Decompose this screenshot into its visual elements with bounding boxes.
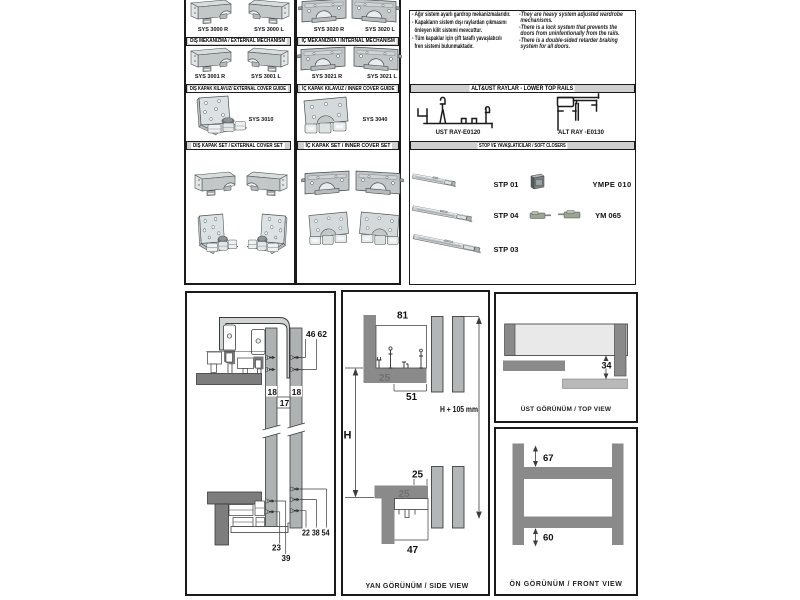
svg-text:34: 34 (602, 361, 612, 371)
svg-text:25: 25 (379, 373, 391, 384)
svg-text:47: 47 (407, 545, 419, 556)
svg-text:18: 18 (292, 387, 302, 397)
svg-text:17: 17 (280, 398, 290, 408)
svg-text:60: 60 (543, 533, 554, 544)
svg-text:H + 105 mm: H + 105 mm (440, 405, 478, 414)
svg-text:23: 23 (272, 544, 281, 553)
svg-text:46: 46 (306, 329, 316, 339)
svg-text:67: 67 (543, 453, 554, 464)
svg-text:H: H (344, 430, 352, 442)
svg-text:81: 81 (397, 311, 409, 322)
svg-text:51: 51 (406, 392, 418, 403)
svg-text:62: 62 (318, 329, 328, 339)
svg-text:39: 39 (282, 554, 291, 563)
svg-text:25: 25 (412, 470, 424, 481)
svg-text:22 38 54: 22 38 54 (302, 529, 330, 538)
svg-text:18: 18 (268, 387, 278, 397)
